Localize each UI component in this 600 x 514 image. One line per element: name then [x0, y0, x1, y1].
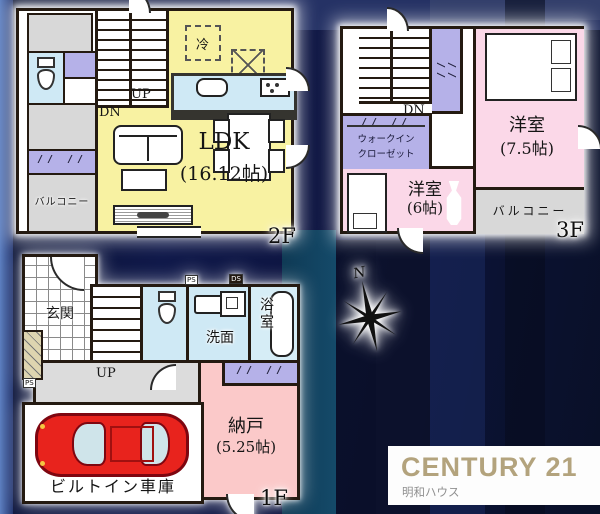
toilet-icon	[143, 291, 191, 324]
car-windshield	[72, 422, 106, 466]
bedroom-75-size: (7.5帖)	[473, 135, 581, 159]
floorplan-1f: 玄関 PS 洗面 PS DS 浴室 UP // // 納戸 (5	[22, 254, 294, 510]
headlight-icon	[40, 461, 45, 466]
garage-label: ビルトイン車庫	[25, 473, 201, 497]
car-roof	[110, 426, 154, 462]
background-band	[430, 0, 600, 20]
closet-2f	[63, 51, 97, 79]
washroom-label: 洗面	[189, 327, 251, 347]
ps-label: PS	[23, 378, 36, 388]
hall-1f	[33, 360, 204, 408]
floor-label-1f: 1F	[260, 486, 288, 510]
car-icon	[35, 413, 189, 477]
door-arc	[397, 228, 423, 254]
window-hatch-1f: // //	[222, 360, 300, 386]
floorplan-flyer: // // バルコニー UP DN 冷	[0, 0, 600, 514]
refrigerator-icon: 冷	[185, 25, 221, 61]
washroom: 洗面 PS DS	[186, 284, 254, 366]
storage-box	[27, 13, 93, 53]
floorplan-2f: // // バルコニー UP DN 冷	[16, 8, 294, 234]
brand-box: CENTURY 21 明和ハウス	[388, 446, 600, 505]
window-hatch-icon: // //	[29, 154, 95, 165]
ps-label: PS	[185, 275, 198, 285]
wic-label-line2: クローゼット	[343, 147, 429, 162]
closet-3f: // //	[432, 29, 463, 114]
brand-logo: CENTURY 21	[388, 446, 600, 483]
ldk-name: LDK	[149, 129, 299, 155]
compass: N	[330, 260, 410, 360]
door-arc	[286, 67, 310, 91]
ds-label: DS	[229, 274, 243, 284]
bed-icon	[485, 33, 577, 101]
wic-label-line1: ウォークイン	[343, 132, 429, 147]
floor-label-2f: 2F	[268, 224, 296, 248]
balcony-label-2f: バルコニー	[29, 193, 95, 208]
hall-2f	[27, 103, 97, 151]
walk-in-closet: // // ウォークイン クローゼット	[340, 113, 432, 175]
balcony-2f: バルコニー	[27, 173, 97, 233]
window-hatch-icon: // //	[435, 58, 457, 86]
company-name: 明和ハウス	[388, 483, 600, 500]
stairs-up-label-1f: UP	[96, 366, 116, 381]
storage-size: (5.25帖)	[198, 436, 294, 457]
window-hatch-icon: // //	[225, 365, 297, 376]
floorplan-3f: // // DN // // ウォークイン クローゼット 洋室 (6帖) 洋室 …	[340, 26, 584, 234]
door-arc	[578, 125, 600, 149]
door-arc	[226, 494, 254, 514]
washer-icon	[220, 291, 246, 317]
stairs-3f	[359, 29, 432, 104]
compass-star-icon: N	[330, 260, 410, 360]
tv-board-icon	[113, 205, 193, 225]
storage-name: 納戸	[198, 412, 294, 438]
toilet-room-2f	[27, 51, 65, 105]
stairs-dn-label-2f: DN	[99, 105, 121, 120]
balcony-label-3f: バルコニー	[476, 202, 584, 219]
ldk-size: (16.12帖)	[141, 159, 307, 186]
shoe-cabinet	[22, 330, 43, 380]
bathroom-label: 浴室	[256, 297, 276, 331]
wall	[429, 166, 473, 169]
genkan-label: 玄関	[25, 303, 95, 323]
door-arc	[387, 7, 409, 31]
floor-label-3f: 3F	[556, 218, 584, 242]
sink-icon	[196, 78, 228, 97]
bathroom: 浴室	[248, 284, 300, 366]
door-arc	[129, 0, 151, 13]
window-hatch-2f: // //	[27, 149, 97, 175]
compass-north-label: N	[351, 264, 368, 283]
toilet-icon	[29, 57, 63, 90]
background-band	[0, 0, 13, 514]
stairs-up-label-2f: UP	[131, 87, 151, 102]
garage: ビルトイン車庫	[22, 402, 204, 504]
headlight-icon	[40, 424, 45, 429]
window-icon	[137, 226, 201, 238]
bedroom-75-name: 洋室	[473, 111, 581, 137]
